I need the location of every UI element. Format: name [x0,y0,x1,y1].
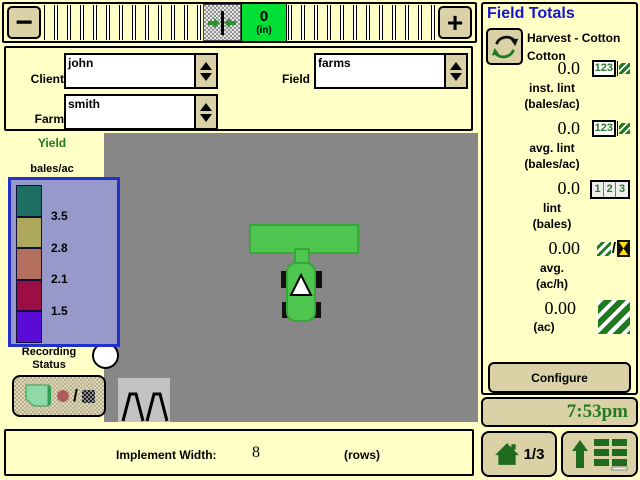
implement-width-label: Implement Width: [116,448,217,462]
yield-legend: 3.5 2.8 2.1 1.5 [8,177,120,347]
implement-width-panel: Implement Width: 8 (rows) [4,429,474,476]
hourglass-icon [617,240,630,257]
total-value: 0.00 [549,238,581,259]
total-label: avg. lint [484,141,620,155]
softkey-pages-icon [594,437,628,471]
field-dropdown[interactable]: farms [314,53,468,89]
client-value: john [66,55,194,87]
cycle-arrows-icon [490,32,520,62]
time-value: 7:53pm [567,401,628,423]
total-row-area: 0.00 (ac) [484,298,632,356]
yield-legend-title: Yield [0,136,104,150]
total-unit: (ac) [484,320,604,334]
field-totals-title: Field Totals [487,5,575,23]
yield-swatch [17,312,41,342]
bale-counter-icon: 1 2 3 [590,180,630,199]
total-row-lint: 0.0 1 2 3 lint (bales) [484,178,632,236]
center-swath-icon [206,8,238,38]
total-unit: (ac/h) [484,277,620,291]
field-map-icon [23,382,53,410]
chevron-up-icon [200,62,212,70]
rate-counter-icon: 123 [592,120,630,137]
field-spinner[interactable] [444,55,466,87]
swath-offset-value: 0 [260,9,268,25]
home-icon [494,442,520,466]
softkey-pages-button[interactable] [561,431,638,477]
record-dot-icon [57,390,69,402]
implement-width-value: 8 [252,444,260,462]
total-unit: (bales) [484,217,620,231]
record-toggle-button[interactable]: / [12,375,106,417]
farm-dropdown[interactable]: smith [64,94,218,130]
slash-icon: / [73,389,78,403]
field-label: Field [268,72,310,86]
yield-threshold: 2.1 [51,272,68,286]
yield-threshold: 1.5 [51,304,68,318]
total-value: 0.00 [545,298,577,319]
total-unit: (bales/ac) [484,157,620,171]
coverage-map[interactable] [104,133,478,422]
farm-value: smith [66,96,194,128]
resource-selector-panel: Client john Farm smith Field farms [4,46,473,131]
operation-name-line1: Harvest - Cotton [527,31,620,45]
farm-label: Farm [18,112,64,126]
area-per-hour-icon: / [597,240,630,257]
farm-spinner[interactable] [194,96,216,128]
chevron-down-icon [200,73,212,81]
up-arrow-icon [572,440,588,468]
chevron-up-icon [200,103,212,111]
total-unit: (bales/ac) [484,97,620,111]
recording-status-line1: Recording [4,346,94,359]
clock-display: 7:53pm [481,397,638,427]
yield-threshold: 3.5 [51,209,68,223]
total-label: inst. lint [484,81,620,95]
total-value: 0.0 [558,178,581,199]
yield-color-scale [16,185,42,343]
total-label: lint [484,201,620,215]
total-value: 0.0 [558,58,581,79]
swath-minus-button[interactable]: − [7,6,41,39]
chevron-down-icon [450,73,462,81]
stop-square-icon [82,390,95,403]
total-row-avg-lint: 0.0 123 avg. lint (bales/ac) [484,118,632,176]
crop-rows-icon [118,378,170,422]
total-row-avg-area-rate: 0.00 / avg. (ac/h) [484,238,632,296]
yield-swatch [17,186,41,218]
recording-status-label: Recording Status [4,346,94,372]
implement-width-unit: (rows) [344,448,380,462]
minus-icon: − [15,10,33,36]
yield-legend-unit: bales/ac [0,163,104,175]
implement-rows-indicator [118,378,170,422]
greenstar-display: { "top_bar": { "minus": "−", "plus": "+"… [0,0,640,480]
recording-status-line2: Status [4,359,94,372]
chevron-up-icon [450,62,462,70]
swath-offset-readout: 0 (in) [241,4,287,41]
client-spinner[interactable] [194,55,216,87]
swath-offset-unit: (in) [256,25,272,36]
field-totals-panel: Field Totals Harvest - Cotton Cotton 0.0… [481,2,638,395]
page-indicator: 1/3 [524,446,545,463]
chevron-down-icon [200,114,212,122]
plus-icon: + [447,9,463,37]
configure-button[interactable]: Configure [488,362,631,393]
swath-plus-button[interactable]: + [438,6,472,39]
rate-counter-icon: 123 [592,60,630,77]
total-value: 0.0 [558,118,581,139]
yield-swatch [17,281,41,313]
client-label: Client [18,72,64,86]
home-button[interactable]: 1/3 [481,431,557,477]
yield-threshold: 2.8 [51,241,68,255]
yield-swatch [17,218,41,250]
center-swath-button[interactable] [203,4,241,41]
field-value: farms [316,55,444,87]
total-label: avg. [484,261,620,275]
total-row-inst-lint: 0.0 123 inst. lint (bales/ac) [484,58,632,116]
swath-bar: − 0 (in) + [2,2,477,43]
client-dropdown[interactable]: john [64,53,218,89]
yield-swatch [17,249,41,281]
